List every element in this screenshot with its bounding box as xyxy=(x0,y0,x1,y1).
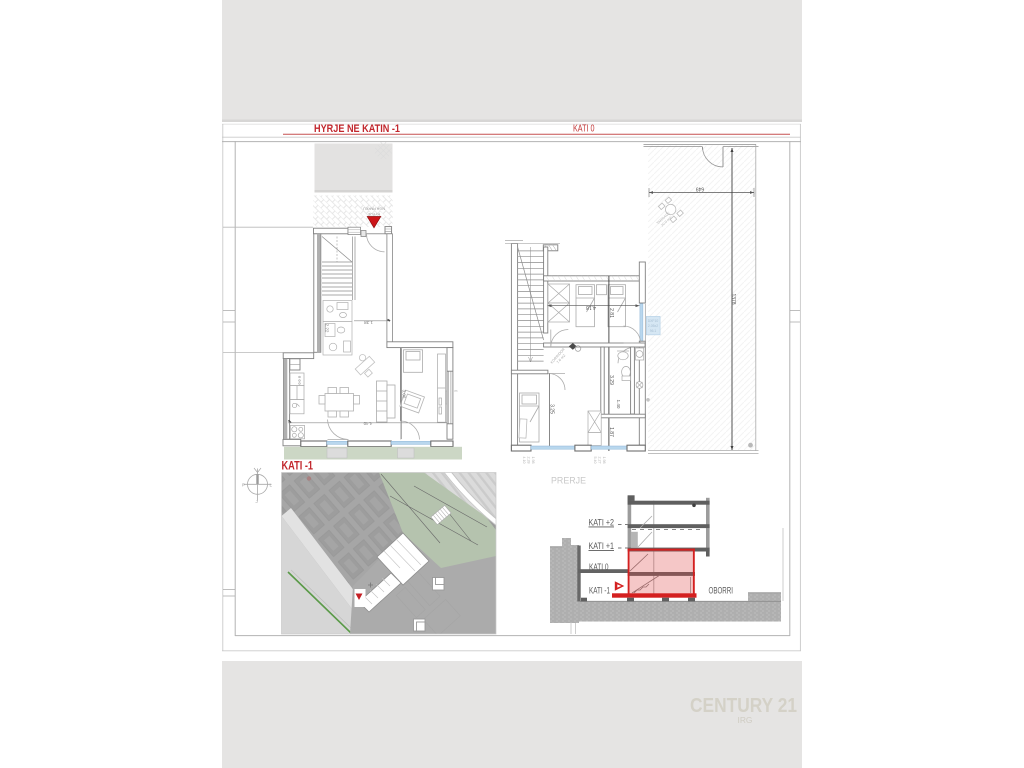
svg-text:1.87: 1.87 xyxy=(608,427,614,437)
svg-text:2.22: 2.22 xyxy=(325,324,330,333)
svg-text:2.05x2: 2.05x2 xyxy=(648,324,658,328)
svg-text:1.98: 1.98 xyxy=(531,457,535,464)
svg-text:2.27: 2.27 xyxy=(598,457,602,464)
svg-text:P: P xyxy=(242,483,245,488)
svg-text:1378: 1378 xyxy=(730,293,736,304)
svg-text:3.06: 3.06 xyxy=(402,390,407,399)
svg-text:96.1: 96.1 xyxy=(650,329,657,333)
svg-text:3.25: 3.25 xyxy=(549,404,555,414)
svg-text:4.40: 4.40 xyxy=(363,421,372,426)
svg-text:2.81: 2.81 xyxy=(608,308,614,318)
svg-text:J: J xyxy=(256,499,258,504)
svg-text:1.98: 1.98 xyxy=(602,457,606,464)
svg-text:3.29: 3.29 xyxy=(608,375,614,385)
svg-text:KATI 0: KATI 0 xyxy=(589,562,609,572)
svg-text:NGA PARKU: NGA PARKU xyxy=(363,207,385,211)
svg-text:KATI +2: KATI +2 xyxy=(589,518,615,528)
svg-text:IRG: IRG xyxy=(738,715,753,725)
svg-text:KATI 0: KATI 0 xyxy=(573,124,595,135)
svg-text:1.40: 1.40 xyxy=(616,400,621,409)
svg-text:DXF10: DXF10 xyxy=(648,319,659,323)
svg-text:5.40: 5.40 xyxy=(593,457,597,464)
svg-text:2.28: 2.28 xyxy=(527,457,531,464)
svg-text:HYRJE: HYRJE xyxy=(367,212,380,216)
svg-text:4.10: 4.10 xyxy=(522,457,526,464)
svg-text:OBORRI: OBORRI xyxy=(709,586,734,596)
svg-text:HYRJE NE KATIN -1: HYRJE NE KATIN -1 xyxy=(314,123,400,135)
svg-text:KATI +1: KATI +1 xyxy=(589,541,615,551)
svg-text:PRERJE: PRERJE xyxy=(551,476,586,487)
svg-text:m: m xyxy=(455,389,458,393)
svg-text:649: 649 xyxy=(696,186,705,192)
svg-text:1.38: 1.38 xyxy=(364,320,373,325)
svg-text:KATI -1: KATI -1 xyxy=(589,586,610,596)
svg-text:KATI -1: KATI -1 xyxy=(282,461,314,473)
svg-text:4.18: 4.18 xyxy=(586,304,596,310)
svg-text:CENTURY 21: CENTURY 21 xyxy=(690,695,797,717)
